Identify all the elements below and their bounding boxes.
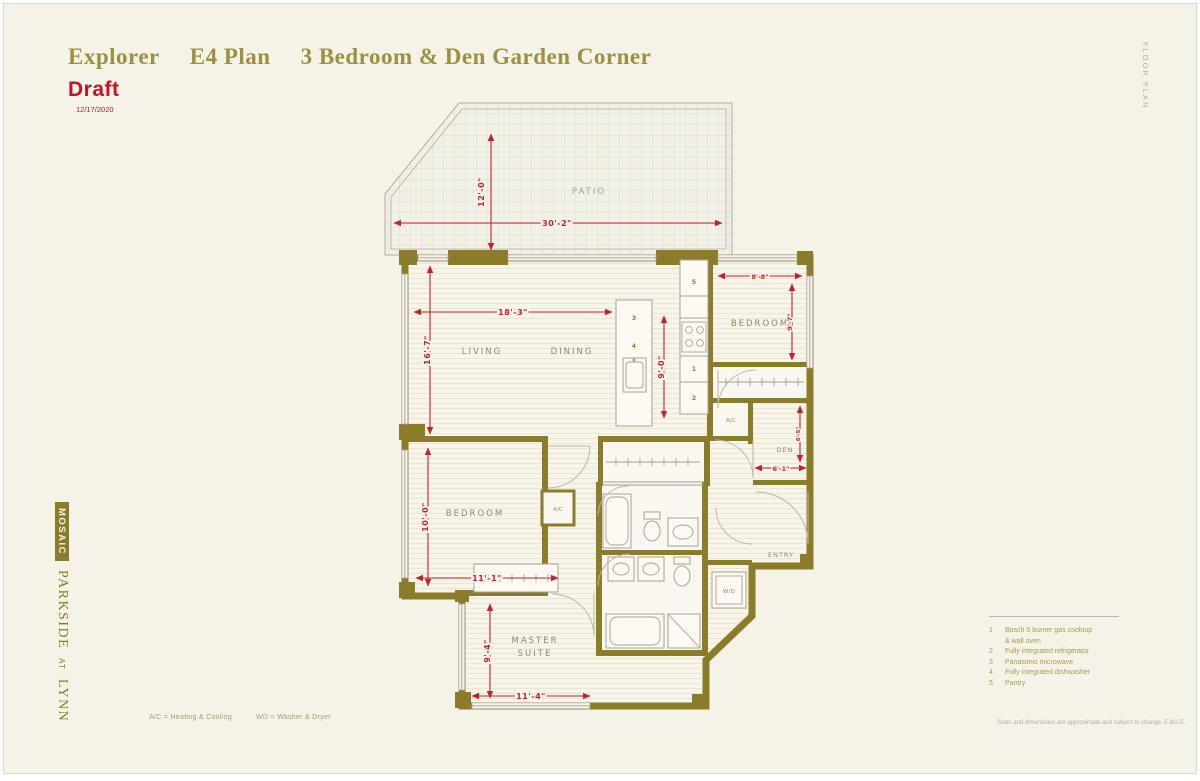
appliance-2-refrigerator: 2 bbox=[692, 395, 696, 402]
appliance-3-microwave: 3 bbox=[632, 315, 636, 322]
den-label: DEN bbox=[777, 446, 794, 454]
patio-area: PATIO 12'-0" 30'-2" bbox=[385, 103, 732, 255]
master-label-line1: MASTER bbox=[511, 636, 558, 646]
bedroom-upper-depth-dim: 9'-7" bbox=[786, 313, 794, 330]
bedroom-left-width-dim: 11'-1" bbox=[472, 574, 502, 583]
living-width-dim: 18'-3" bbox=[498, 308, 528, 317]
patio-depth-dim: 12'-0" bbox=[477, 177, 486, 207]
den-depth-dim: 6'-5" bbox=[796, 427, 802, 442]
ac-closet-right-label: A/C bbox=[726, 418, 736, 424]
page-background: Explorer E4 Plan 3 Bedroom & Den Garden … bbox=[3, 3, 1197, 774]
ac-closet-left-label: A/C bbox=[553, 507, 563, 513]
entry-label: ENTRY bbox=[768, 551, 794, 559]
appliance-4-dishwasher: 4 bbox=[632, 343, 636, 350]
washer-dryer-label: W/D bbox=[723, 589, 735, 595]
den-width-dim: 6'-1" bbox=[772, 465, 789, 473]
master-label-line2: SUITE bbox=[518, 649, 553, 659]
master-depth-dim: 9'-4" bbox=[483, 639, 492, 663]
bedroom-upper-width-dim: 8'-8" bbox=[751, 273, 768, 281]
appliance-1-cooktop-oven: 1 bbox=[692, 366, 696, 373]
patio-width-dim: 30'-2" bbox=[542, 219, 572, 228]
appliance-5-pantry: 5 bbox=[692, 279, 696, 286]
bedroom-left-depth-dim: 10'-0" bbox=[421, 502, 430, 532]
living-depth-dim: 16'-7" bbox=[423, 335, 432, 365]
kitchen-depth-dim: 9'-0" bbox=[657, 355, 666, 379]
bedroom-upper-label: BEDROOM bbox=[731, 319, 789, 329]
patio-label: PATIO bbox=[572, 187, 606, 197]
floor-plan-drawing: PATIO 12'-0" 30'-2" bbox=[4, 4, 1200, 781]
dining-label: DINING bbox=[551, 347, 594, 357]
living-label: LIVING bbox=[462, 347, 503, 357]
master-width-dim: 11'-4" bbox=[516, 692, 546, 701]
bedroom-left-label: BEDROOM bbox=[446, 509, 504, 519]
